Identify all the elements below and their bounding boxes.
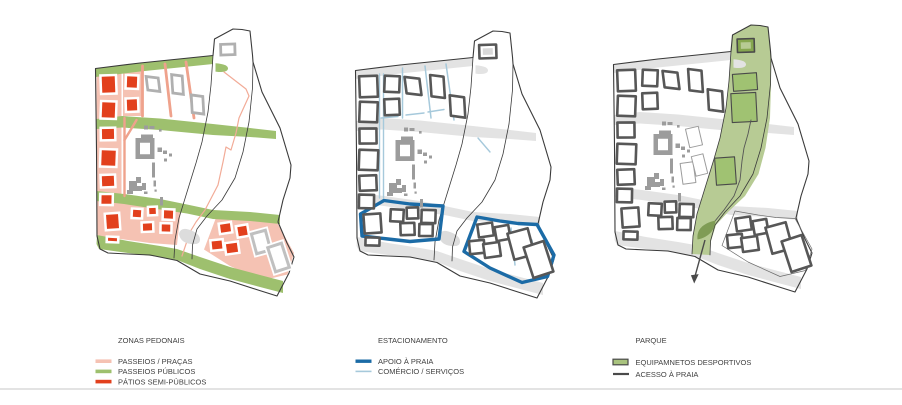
svg-text:PARQUE: PARQUE bbox=[636, 336, 667, 345]
svg-text:ACESSO À PRAIA: ACESSO À PRAIA bbox=[636, 370, 699, 379]
svg-text:PASSEIOS / PRAÇAS: PASSEIOS / PRAÇAS bbox=[118, 357, 192, 366]
svg-text:ZONAS PEDONAIS: ZONAS PEDONAIS bbox=[118, 336, 185, 345]
svg-text:PÁTIOS SEMI-PÚBLICOS: PÁTIOS SEMI-PÚBLICOS bbox=[118, 377, 206, 386]
svg-text:APOIO À PRAIA: APOIO À PRAIA bbox=[378, 357, 433, 366]
svg-text:COMÉRCIO / SERVIÇOS: COMÉRCIO / SERVIÇOS bbox=[378, 367, 464, 376]
svg-text:EQUIPAMNETOS DESPORTIVOS: EQUIPAMNETOS DESPORTIVOS bbox=[636, 358, 752, 367]
svg-text:ESTACIONAMENTO: ESTACIONAMENTO bbox=[378, 336, 448, 345]
svg-text:PASSEIOS PÚBLICOS: PASSEIOS PÚBLICOS bbox=[118, 367, 195, 376]
